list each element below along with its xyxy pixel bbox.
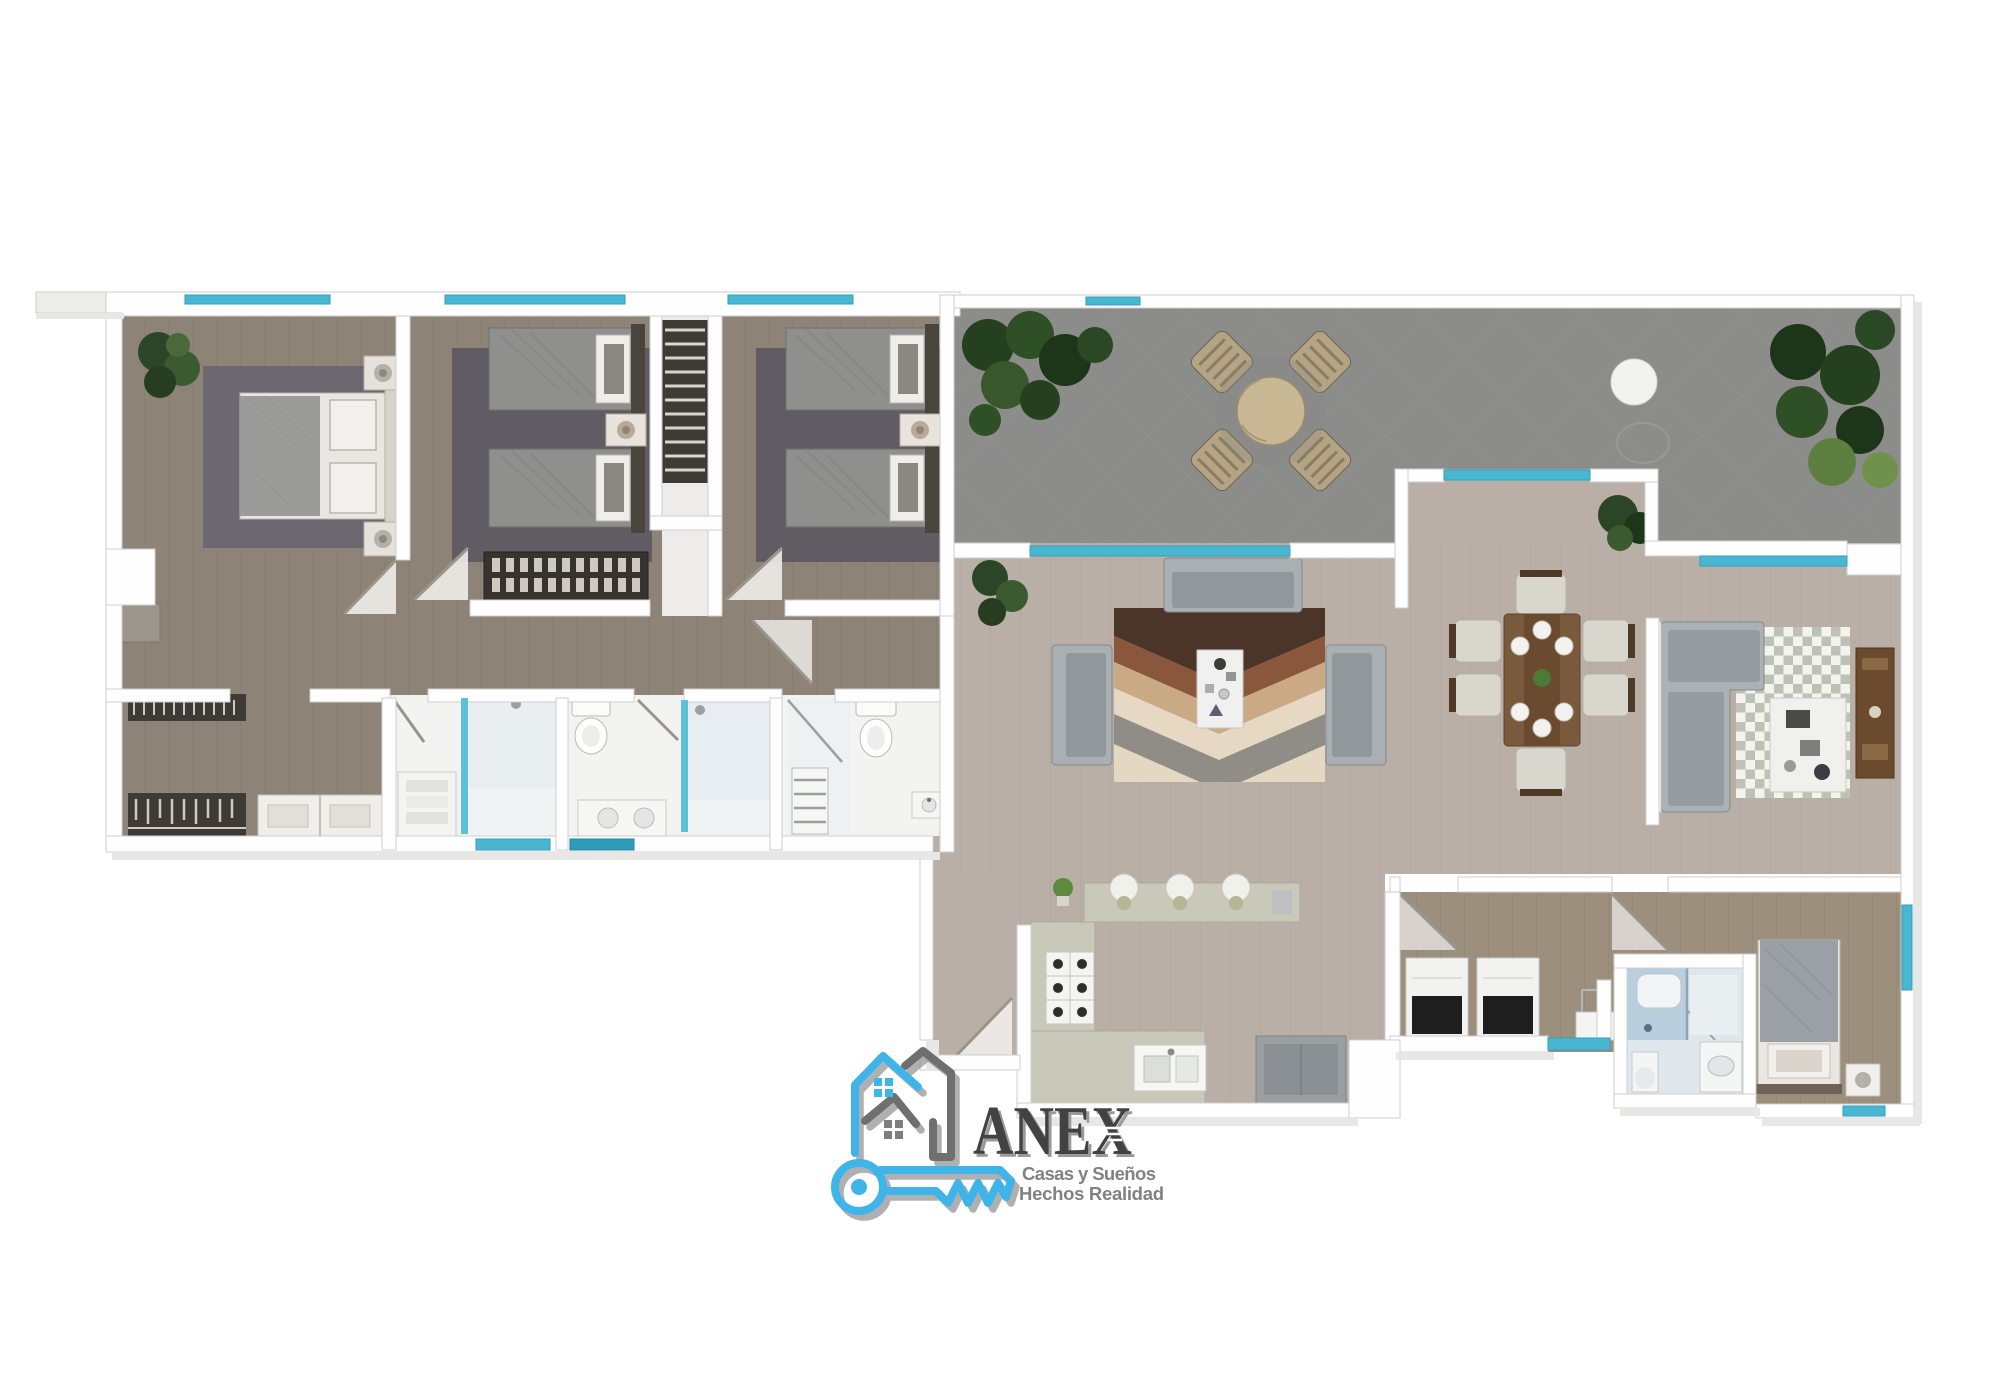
svg-text:Casas y Sueños: Casas y Sueños bbox=[1022, 1163, 1156, 1184]
svg-text:Hechos Realidad: Hechos Realidad bbox=[1019, 1183, 1164, 1204]
svg-text:ANEX: ANEX bbox=[973, 1093, 1132, 1170]
